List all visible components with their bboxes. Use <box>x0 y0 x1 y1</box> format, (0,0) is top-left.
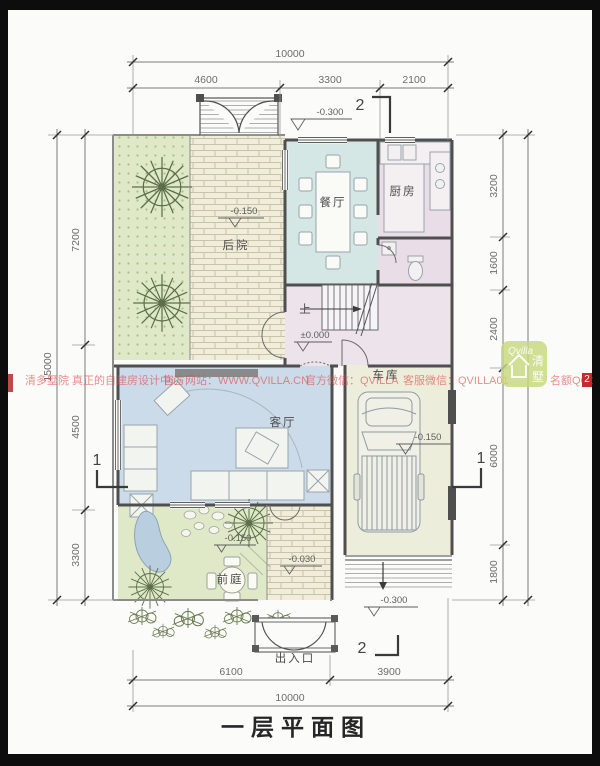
frontyard-tree-2 <box>128 565 171 608</box>
svg-text:-0.150: -0.150 <box>225 533 252 544</box>
label-dining: 餐厅 <box>320 195 347 209</box>
qvilla-logo: Qvilla 清 墅 <box>501 341 547 387</box>
garage-pier-2 <box>448 486 456 520</box>
dim-right-seg-2: 1600 <box>488 251 500 275</box>
screenshot-frame: 上 -0.300 -0 <box>0 0 600 766</box>
section-mark-top: 2 <box>356 97 365 114</box>
dim-top-seg-2: 3300 <box>318 74 342 86</box>
svg-text:-0.300: -0.300 <box>317 107 344 118</box>
dim-bottom-seg-1: 6100 <box>219 666 243 678</box>
dim-right-seg-5: 1800 <box>488 560 500 584</box>
label-backyard: 后院 <box>223 238 250 252</box>
logo-char-bottom: 墅 <box>532 370 544 384</box>
watermark-service: 客服微信：QVILLA01 <box>403 372 509 388</box>
dim-left-seg-3: 3300 <box>70 543 82 567</box>
section-mark-bottom: 2 <box>358 640 367 657</box>
garage-ramp-hatch <box>345 557 452 590</box>
watermark-qq-label: 名额QQ： <box>550 372 600 388</box>
section-mark-east: 1 <box>477 450 486 467</box>
label-living: 客厅 <box>270 415 297 429</box>
label-entrance: 出入口 <box>275 651 316 665</box>
watermark-wechat: 官方微信：QVILLA <box>305 372 399 388</box>
entrance-gate <box>252 615 338 652</box>
svg-text:-0.300: -0.300 <box>381 595 408 606</box>
section-mark-west: 1 <box>93 452 102 469</box>
label-kitchen: 厨房 <box>390 185 417 198</box>
watermark-qq-value: 2 <box>582 373 592 387</box>
car <box>354 392 424 532</box>
dim-top-total: 10000 <box>275 48 304 60</box>
stairs-up-label: 上 <box>299 303 313 316</box>
logo-char-top: 清 <box>532 354 544 368</box>
dim-left-seg-1: 7200 <box>70 228 82 252</box>
entry-path-paving <box>267 505 332 600</box>
dim-top-seg-3: 2100 <box>402 74 426 86</box>
dim-left-seg-2: 4500 <box>70 415 82 439</box>
top-gate <box>196 94 282 135</box>
dim-top-seg-1: 4600 <box>194 74 218 86</box>
svg-text:-0.150: -0.150 <box>415 432 442 443</box>
dim-right-seg-3: 2400 <box>488 317 500 341</box>
label-frontyard: 前庭 <box>217 572 244 586</box>
svg-text:-0.150: -0.150 <box>231 206 258 217</box>
watermark-brand: 清多墅院 真正的自建房设计中心 <box>25 372 182 388</box>
svg-text:±0.000: ±0.000 <box>301 330 330 341</box>
dim-bottom-total: 10000 <box>275 692 304 704</box>
garage-pier-1 <box>448 390 456 424</box>
dim-bottom-seg-2: 3900 <box>377 666 401 678</box>
drawing-title: 一层平面图 <box>221 714 371 740</box>
dim-right-seg-4: 6000 <box>488 444 500 468</box>
logo-house-icon <box>509 355 529 377</box>
watermark-site: 官方网站：WWW.QVILLA.CN <box>163 372 309 388</box>
watermark-left-sliver <box>8 374 13 392</box>
dim-right-seg-1: 3200 <box>488 174 500 198</box>
svg-text:-0.030: -0.030 <box>289 554 316 565</box>
